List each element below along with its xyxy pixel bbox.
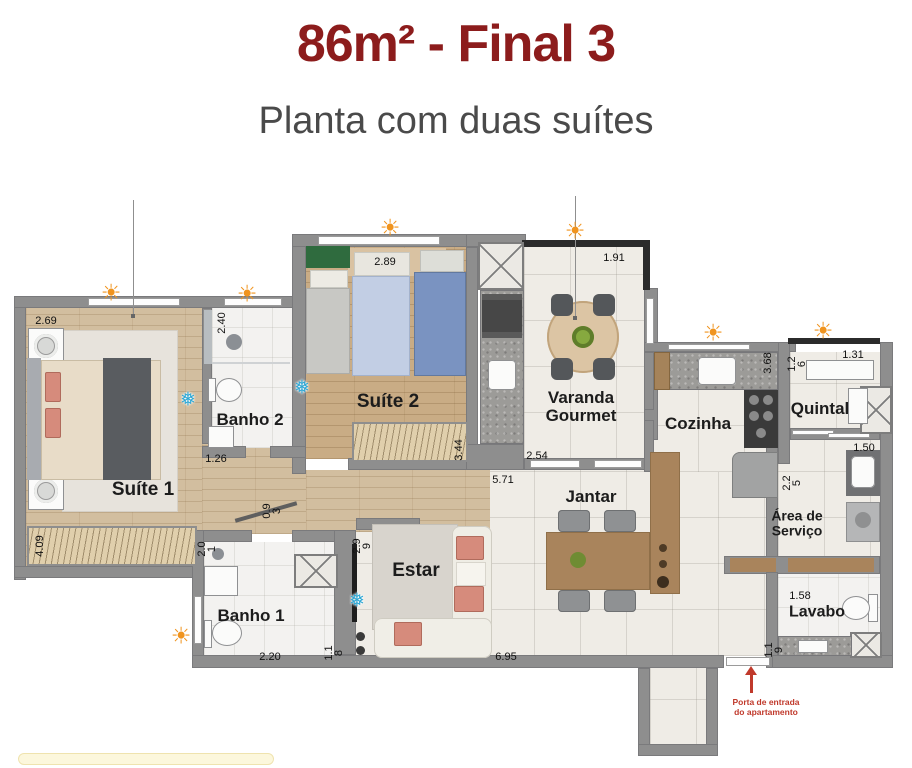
chair [551, 358, 573, 380]
room-label-suite2: Suíte 2 [357, 392, 419, 412]
burner [763, 395, 773, 405]
balcony-edge [522, 240, 650, 247]
lamp [34, 334, 58, 358]
island-knob [659, 560, 667, 568]
burner [763, 411, 773, 421]
wardrobe [352, 422, 468, 462]
plant [570, 552, 586, 568]
entry-door-label: Porta de entrada do apartamento [732, 697, 799, 717]
pillow-green [306, 246, 350, 268]
dim-jantar-top: 5.71 [492, 475, 513, 485]
dim-banho2-door: 1.26 [205, 454, 226, 464]
dim-hall-wall: 0.9 3 [262, 503, 282, 518]
dim-quintal-left: 1.2 6 [787, 356, 807, 371]
dim-banho2-width: 2.40 [217, 312, 227, 333]
wall [14, 566, 204, 578]
snowflake-icon: ❅ [349, 592, 365, 611]
bench [806, 360, 874, 380]
room-label-suite1: Suíte 1 [112, 480, 174, 500]
leader-line [575, 196, 576, 318]
toilet [216, 378, 242, 402]
dim-cozinha-right: 3.68 [763, 352, 773, 373]
island-knob [657, 576, 669, 588]
sun-icon: ☀ [101, 282, 122, 305]
dim-banho1-bottom: 2.20 [259, 652, 280, 662]
bed [352, 276, 410, 376]
room-label-cozinha: Cozinha [665, 415, 731, 433]
chair [604, 590, 636, 612]
shower-glass [204, 310, 212, 364]
burner [756, 428, 766, 438]
window [646, 298, 654, 344]
room-label-jantar: Jantar [565, 488, 616, 506]
room-label-quintal: Quintal [791, 400, 850, 418]
dim-suite2-right: 3.44 [454, 439, 464, 460]
toilet [842, 596, 870, 620]
room-label-lavabo: Lavabo [789, 605, 845, 622]
door-threshold [594, 460, 642, 468]
sink [798, 640, 828, 653]
wall [638, 668, 650, 750]
grill [482, 294, 522, 338]
fridge [732, 452, 778, 498]
balcony-edge [788, 338, 880, 344]
leader-dot [131, 314, 135, 318]
wall [638, 744, 718, 756]
page-subtitle: Planta com duas suítes [0, 100, 912, 143]
dim-suite1-top: 2.69 [35, 316, 56, 326]
wood-door-panel [788, 558, 874, 572]
toilet-tank [208, 378, 216, 402]
single-bed [306, 288, 350, 374]
wall [14, 296, 26, 580]
entry-door [726, 657, 770, 666]
entry-arrow-icon [745, 666, 757, 675]
laundry-sink [851, 456, 875, 488]
speaker [356, 632, 365, 641]
shower-head [226, 334, 242, 350]
dim-suite2-top: 2.89 [374, 257, 395, 267]
wall [706, 668, 718, 750]
cabinet [654, 352, 670, 390]
chair [593, 294, 615, 316]
leader-line [133, 200, 134, 316]
pillow [420, 250, 464, 272]
cushion [394, 622, 422, 646]
dim-banho1-top: 2.0 1 [197, 541, 217, 556]
dim-area-servico-sink: 1.50 [853, 443, 874, 453]
room-label-banho1: Banho 1 [217, 607, 284, 625]
bed-headboard [27, 358, 41, 480]
dining-table [546, 532, 650, 590]
dim-estar-bottom: 6.95 [495, 652, 516, 662]
dim-varanda-top: 1.91 [603, 253, 624, 263]
dim-lavabo-top: 1.58 [789, 591, 810, 601]
sun-icon: ☀ [813, 320, 834, 343]
room-label-varanda-gourmet: Varanda Gourmet [546, 389, 617, 425]
sun-icon: ☀ [237, 283, 258, 306]
duct-shaft [478, 242, 524, 290]
dim-varanda-bottom: 2.54 [526, 451, 547, 461]
dim-area-servico-left: 2.2 5 [782, 475, 802, 490]
sofa-chaise [374, 618, 492, 658]
footer-bar [18, 753, 274, 765]
single-bed [414, 272, 466, 376]
bench [848, 388, 868, 424]
washer-door [855, 512, 871, 528]
pillow [310, 270, 348, 288]
wall [270, 446, 306, 458]
lamp [34, 479, 58, 503]
sink [488, 360, 516, 390]
chair [558, 590, 590, 612]
duct-shaft [850, 632, 882, 658]
bed-throw [103, 358, 151, 480]
pillow [45, 408, 61, 438]
sink [208, 426, 234, 448]
sun-icon: ☀ [380, 217, 401, 240]
window [194, 596, 202, 644]
pillow [45, 372, 61, 402]
kitchen-island [650, 452, 680, 594]
shower-divider [212, 362, 290, 364]
snowflake-icon: ❅ [180, 391, 196, 410]
burner [749, 395, 759, 405]
chair [604, 510, 636, 532]
sink [698, 357, 736, 385]
duct-shaft [294, 554, 338, 588]
page-title: 86m² - Final 3 [0, 14, 912, 74]
room-label-estar: Estar [392, 561, 440, 581]
speaker [356, 646, 365, 655]
leader-dot [573, 316, 577, 320]
sun-icon: ☀ [703, 322, 724, 345]
wood-door-panel [730, 558, 776, 572]
cushion [456, 562, 486, 586]
floor-entry-corridor [650, 668, 706, 746]
chair [593, 358, 615, 380]
cushion [456, 536, 484, 560]
wall [466, 444, 524, 470]
room-label-banho2: Banho 2 [216, 411, 283, 429]
wardrobe [27, 526, 197, 566]
plant [572, 326, 594, 348]
sun-icon: ☀ [565, 220, 586, 243]
sink [204, 566, 238, 596]
wall [644, 352, 654, 410]
chair [558, 510, 590, 532]
dim-quintal-top: 1.31 [842, 350, 863, 360]
burner [749, 411, 759, 421]
island-knob [659, 544, 667, 552]
dim-estar-left-top: 2.9 9 [352, 538, 372, 553]
entry-arrow-icon [750, 675, 753, 693]
sun-icon: ☀ [171, 625, 192, 648]
room-label-area-servico: Área de Serviço [771, 508, 822, 537]
snowflake-icon: ❅ [294, 379, 310, 398]
toilet-tank [204, 620, 212, 648]
balcony-edge [643, 240, 650, 290]
dim-estar-left-bottom: 1.1 8 [324, 645, 344, 660]
dim-lavabo-left: 1.1 9 [764, 642, 784, 657]
cushion [454, 586, 484, 612]
wall [292, 234, 306, 474]
dim-suite1-wardrobe: 4.09 [35, 535, 45, 556]
chair [551, 294, 573, 316]
